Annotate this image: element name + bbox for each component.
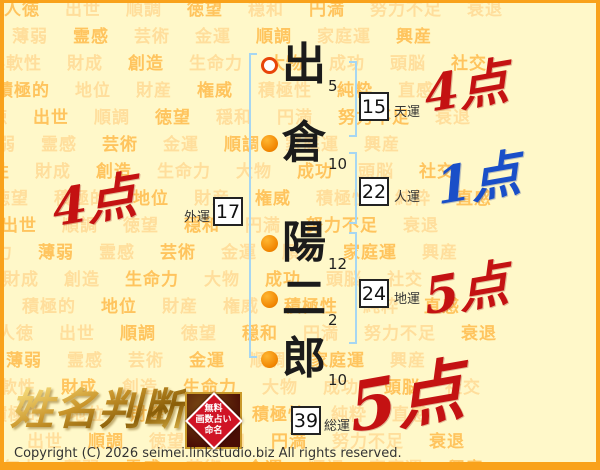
background-word: 衰退 bbox=[467, 3, 503, 20]
heaven-fortune-label: 天運 bbox=[394, 101, 420, 120]
background-word: 頭脳 bbox=[390, 54, 426, 74]
background-word: 金運 bbox=[189, 351, 225, 371]
background-word: 霊感 bbox=[41, 135, 77, 155]
background-word: 出世 bbox=[65, 3, 101, 20]
copyright-text: Copyright (C) 2026 seimei.linkstudio.biz… bbox=[14, 446, 402, 461]
surname-marker-icon bbox=[261, 57, 278, 74]
name-marker-icon bbox=[261, 235, 278, 252]
background-word: 順調 bbox=[94, 108, 130, 128]
background-word: 興産 bbox=[422, 243, 458, 263]
background-word: 穏和 bbox=[248, 3, 284, 20]
background-word: 財産 bbox=[162, 297, 198, 317]
name-character-row: 郎 10 bbox=[261, 335, 347, 383]
background-word: 円満 bbox=[309, 3, 345, 20]
background-word: 徳望 bbox=[4, 189, 29, 209]
stroke-count: 12 bbox=[328, 255, 347, 273]
stroke-count: 2 bbox=[328, 311, 338, 329]
background-word: 財産 bbox=[136, 81, 172, 101]
outer-fortune-bracket bbox=[249, 53, 257, 358]
background-word: 社交 bbox=[387, 270, 423, 290]
background-word: 創造 bbox=[128, 54, 164, 74]
background-word-row: 無力薄弱霊感芸術金運順調家庭運興産 bbox=[4, 238, 483, 263]
earth-fortune-value-box: 24 bbox=[359, 279, 389, 308]
background-word: 興産 bbox=[396, 27, 432, 47]
background-word: 金運 bbox=[163, 135, 199, 155]
site-logo[interactable]: 姓名判断 bbox=[10, 387, 186, 434]
background-word: 芸術 bbox=[102, 135, 138, 155]
background-word: 出世 bbox=[4, 216, 37, 236]
name-character: 倉 bbox=[282, 119, 326, 167]
background-word: 霊感 bbox=[73, 27, 109, 47]
seal-line: 命名 bbox=[204, 426, 222, 437]
name-character: 出 bbox=[282, 41, 326, 89]
background-word: 徳望 bbox=[187, 3, 223, 20]
background-word: 出世 bbox=[33, 108, 69, 128]
heaven-point-rating: 4点 bbox=[422, 56, 511, 121]
name-marker-icon bbox=[261, 291, 278, 308]
background-word: 芸術 bbox=[128, 351, 164, 371]
earth-fortune-bracket bbox=[349, 232, 357, 344]
outer-point-rating: 4点 bbox=[50, 170, 139, 235]
name-character-row: 二 2 bbox=[261, 275, 338, 323]
background-word: 努力不足 bbox=[370, 3, 442, 20]
background-word: 地位 bbox=[75, 81, 111, 101]
background-word: 努力不足 bbox=[364, 324, 436, 344]
background-word: 人徳 bbox=[4, 324, 34, 344]
outer-fortune-value-box: 17 bbox=[213, 197, 243, 226]
stroke-count: 5 bbox=[328, 77, 338, 95]
stroke-count: 10 bbox=[328, 155, 347, 173]
person-fortune-bracket bbox=[349, 152, 357, 224]
background-word: 創造 bbox=[64, 270, 100, 290]
seal-line: 無料 bbox=[204, 404, 222, 415]
seal-line: 画数占い bbox=[195, 415, 231, 426]
background-word: 薄弱 bbox=[12, 27, 48, 47]
background-word: 柔軟性 bbox=[4, 54, 42, 74]
name-character-row: 倉 10 bbox=[261, 119, 347, 167]
total-point-rating: 5点 bbox=[346, 355, 467, 443]
background-word: 霊感 bbox=[67, 351, 103, 371]
background-word: 無力 bbox=[4, 243, 13, 263]
person-point-rating: 1点 bbox=[434, 148, 523, 213]
background-word: 順調 bbox=[120, 324, 156, 344]
background-word: 金運 bbox=[195, 27, 231, 47]
background-word-row: 徳望積極的地位財産権威積極性純粋直感 bbox=[4, 76, 459, 101]
person-fortune-label: 人運 bbox=[394, 186, 420, 205]
background-word: 薄弱 bbox=[38, 243, 74, 263]
background-word: 芸術 bbox=[160, 243, 196, 263]
name-character: 陽 bbox=[282, 219, 326, 267]
free-naming-seal-badge[interactable]: 無料 画数占い 命名 bbox=[185, 392, 242, 449]
background-word: 財成 bbox=[67, 54, 103, 74]
background-word: 人徳 bbox=[4, 108, 8, 128]
background-word: 人徳 bbox=[4, 3, 40, 20]
name-character: 郎 bbox=[282, 335, 326, 383]
total-fortune-label: 総運 bbox=[324, 415, 350, 434]
background-word: 衰退 bbox=[429, 432, 465, 452]
stroke-count: 10 bbox=[328, 371, 347, 389]
name-marker-icon bbox=[261, 351, 278, 368]
background-word: 積極的 bbox=[22, 297, 76, 317]
bottom-accent-bar bbox=[4, 462, 596, 470]
person-fortune-value-box: 22 bbox=[359, 177, 389, 206]
background-word: 穏和 bbox=[216, 108, 252, 128]
heaven-fortune-bracket bbox=[349, 61, 357, 137]
name-character: 二 bbox=[282, 275, 326, 323]
background-word: 地位 bbox=[133, 189, 169, 209]
background-word: 徳望 bbox=[155, 108, 191, 128]
background-word: 霊感 bbox=[99, 243, 135, 263]
background-word: 衰退 bbox=[461, 324, 497, 344]
background-word-row: 無力薄弱霊感芸術金運順調家庭運興産 bbox=[4, 130, 425, 155]
background-word: 薄弱 bbox=[4, 135, 16, 155]
seal-text: 無料 画数占い 命名 bbox=[187, 394, 240, 447]
name-character-row: 出 5 bbox=[261, 41, 338, 89]
background-word: 芸術 bbox=[134, 27, 170, 47]
background-word: 権威 bbox=[255, 189, 291, 209]
background-word: 順調 bbox=[126, 3, 162, 20]
earth-fortune-label: 地運 bbox=[394, 288, 420, 307]
background-word: 地位 bbox=[101, 297, 137, 317]
background-word: 衰退 bbox=[403, 216, 439, 236]
earth-point-rating: 5点 bbox=[422, 258, 511, 323]
background-word: 生命力 bbox=[157, 162, 211, 182]
background-word: 薄弱 bbox=[6, 351, 42, 371]
background-word: 生命力 bbox=[189, 54, 243, 74]
background-word: 出世 bbox=[59, 324, 95, 344]
background-word-row: 人徳出世順調徳望穏和円満努力不足衰退 bbox=[4, 3, 528, 20]
heaven-fortune-value-box: 15 bbox=[359, 92, 389, 121]
total-fortune-value-box: 39 bbox=[291, 406, 321, 435]
name-marker-icon bbox=[261, 135, 278, 152]
background-word: 徳望 bbox=[181, 324, 217, 344]
seimei-handan-result-page: 人徳出世順調徳望穏和円満努力不足衰退無力薄弱霊感芸術金運順調家庭運興産柔軟性財成… bbox=[0, 0, 600, 470]
background-word: 財成 bbox=[4, 270, 39, 290]
background-word: 興産 bbox=[364, 135, 400, 155]
background-word: 柔軟性 bbox=[4, 162, 10, 182]
background-word: 権威 bbox=[197, 81, 233, 101]
background-word: 大物 bbox=[204, 270, 240, 290]
outer-fortune-label: 外運 bbox=[184, 206, 210, 225]
background-word: 生命力 bbox=[125, 270, 179, 290]
background-word: 積極的 bbox=[4, 81, 50, 101]
background-word-row: 無力薄弱霊感芸術金運順調家庭運興産 bbox=[4, 22, 457, 47]
name-character-row: 陽 12 bbox=[261, 219, 347, 267]
